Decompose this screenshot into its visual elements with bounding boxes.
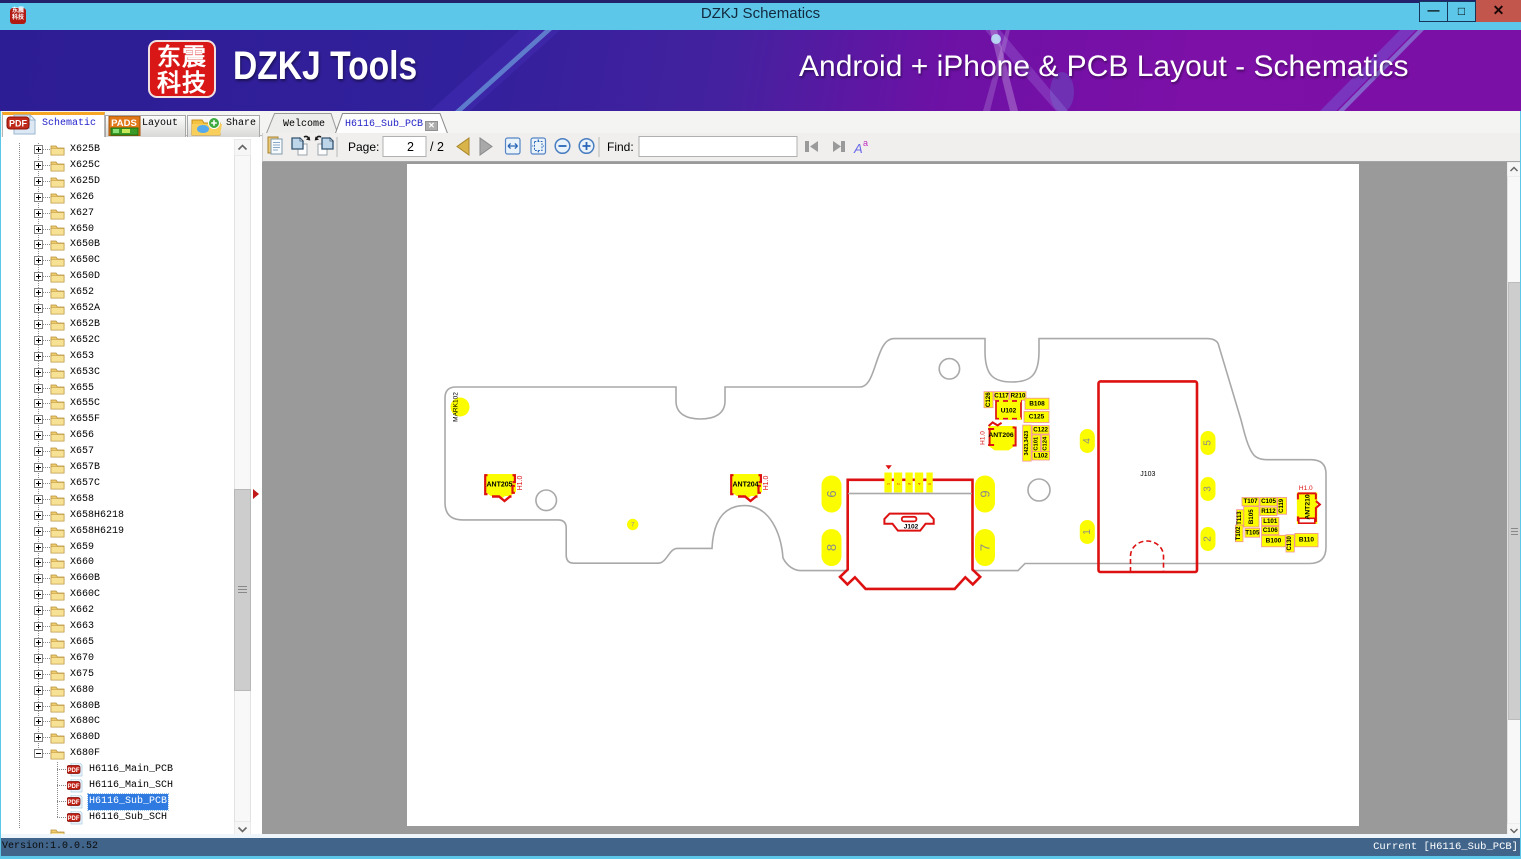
svg-text:C126: C126 <box>985 392 992 407</box>
svg-text:A: A <box>853 141 863 156</box>
svg-text:H1.0: H1.0 <box>980 431 987 445</box>
svg-text:J102: J102 <box>904 524 919 531</box>
svg-text:B110: B110 <box>1299 537 1315 544</box>
svg-text:ANT205: ANT205 <box>486 482 512 489</box>
svg-text:a: a <box>863 138 868 148</box>
svg-text:H1.0: H1.0 <box>763 476 770 491</box>
svg-text:ANT210: ANT210 <box>1305 494 1312 520</box>
svg-text:1: 1 <box>1082 529 1093 535</box>
svg-text:4: 4 <box>1082 438 1093 444</box>
svg-text:U102: U102 <box>1001 408 1017 415</box>
svg-text:J103: J103 <box>1140 471 1155 478</box>
svg-text:3: 3 <box>1203 486 1214 492</box>
svg-text:2: 2 <box>407 140 414 154</box>
svg-text:T113: T113 <box>1237 511 1243 525</box>
svg-text:R210: R210 <box>1011 392 1026 399</box>
svg-text:3423,3423: 3423,3423 <box>1024 431 1030 456</box>
svg-text:L102: L102 <box>1034 452 1049 459</box>
svg-text:B105: B105 <box>1248 509 1255 524</box>
svg-text:C130: C130 <box>1287 536 1293 551</box>
svg-text:C124: C124 <box>1043 436 1049 451</box>
svg-text:H1.0: H1.0 <box>1299 485 1313 492</box>
svg-text:R112: R112 <box>1261 508 1276 515</box>
svg-text:Page:: Page: <box>348 140 379 154</box>
svg-text:C105: C105 <box>1261 498 1276 505</box>
svg-text:PDF: PDF <box>9 119 28 129</box>
svg-text:7: 7 <box>978 544 993 551</box>
svg-text:T102: T102 <box>1236 526 1242 540</box>
svg-text:PDF: PDF <box>68 800 80 806</box>
svg-text:C117: C117 <box>994 392 1009 399</box>
svg-text:L101: L101 <box>1263 518 1278 525</box>
svg-text:ANT204: ANT204 <box>732 482 758 489</box>
svg-text:C101: C101 <box>1033 436 1039 451</box>
svg-text:PDF: PDF <box>68 816 80 822</box>
svg-text:6: 6 <box>824 490 839 497</box>
svg-text:C106: C106 <box>1263 527 1278 534</box>
svg-text:9: 9 <box>978 490 993 497</box>
svg-text:MARK102: MARK102 <box>453 392 460 422</box>
svg-text:B100: B100 <box>1266 538 1282 545</box>
svg-text:C119: C119 <box>1279 498 1285 513</box>
svg-text:Find:: Find: <box>607 140 634 154</box>
svg-text:5: 5 <box>1203 440 1214 446</box>
svg-text:B108: B108 <box>1029 400 1045 407</box>
svg-text:/ 2: / 2 <box>430 140 444 154</box>
svg-text:PDF: PDF <box>68 784 80 790</box>
svg-text:PADS: PADS <box>111 118 137 129</box>
svg-text:T105: T105 <box>1245 529 1260 536</box>
svg-text:T107: T107 <box>1243 498 1258 505</box>
svg-text:8: 8 <box>824 544 839 551</box>
svg-text:C125: C125 <box>1029 413 1045 420</box>
svg-text:H1.0: H1.0 <box>517 476 524 491</box>
svg-text:2: 2 <box>1203 536 1214 542</box>
svg-text:PDF: PDF <box>68 768 80 774</box>
svg-text:C122: C122 <box>1033 426 1048 433</box>
svg-text:7: 7 <box>631 522 635 529</box>
svg-text:ANT206: ANT206 <box>988 432 1014 439</box>
